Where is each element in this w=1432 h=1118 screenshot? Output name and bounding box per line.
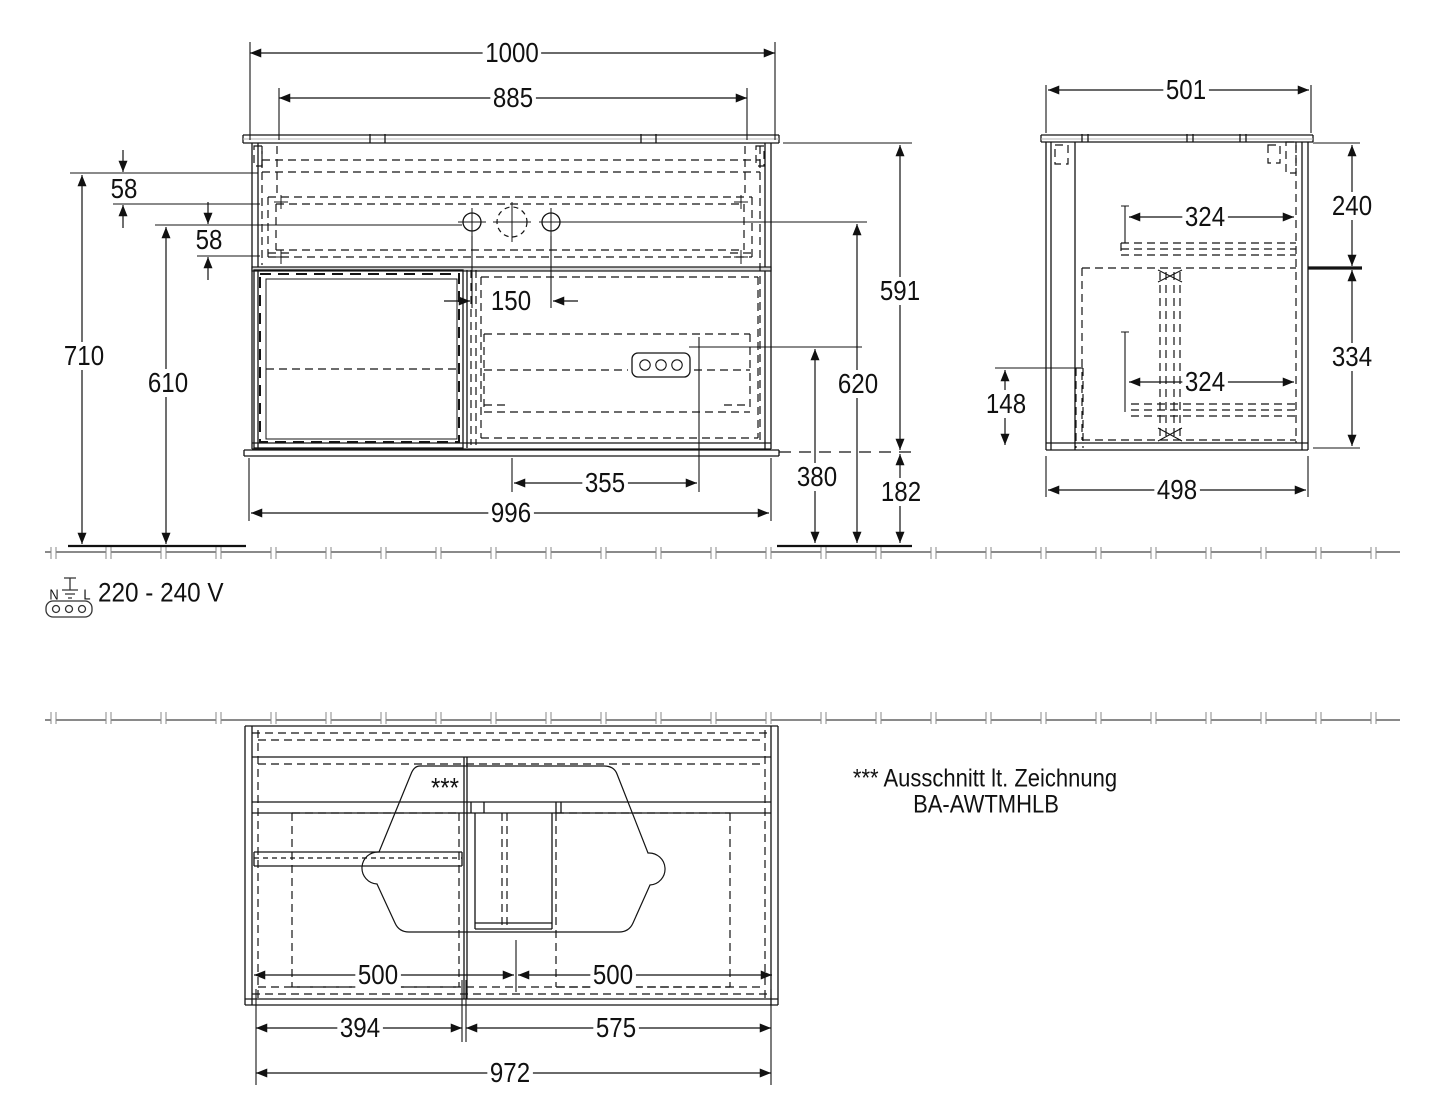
dim-bottom-left-section: 500	[355, 961, 400, 989]
dim-front-tap-height: 620	[835, 370, 880, 398]
dim-front-basin-width: 885	[490, 84, 535, 112]
dim-bottom-left-module: 394	[337, 1014, 382, 1042]
dim-side-upper-drawer-depth: 324	[1182, 203, 1227, 231]
dim-front-drawer-top-gap: 58	[193, 226, 225, 254]
dim-front-drawer-ref-height: 610	[145, 369, 190, 397]
dim-side-top-depth: 501	[1163, 76, 1208, 104]
bottom-view-hidden-lines	[252, 730, 771, 1000]
dim-front-basin-rim-drop: 58	[108, 175, 140, 203]
terminal-neutral-label: N	[48, 588, 59, 603]
dim-front-socket-offset: 355	[582, 469, 627, 497]
dim-bottom-carcass-width: 972	[487, 1059, 532, 1087]
dim-bottom-right-section: 500	[590, 961, 635, 989]
cutout-note-line2: BA-AWTMHLB	[913, 793, 1059, 818]
dim-front-socket-height: 380	[794, 463, 839, 491]
cutout-note-line1: *** Ausschnitt lt. Zeichnung	[853, 767, 1117, 792]
dim-front-carcass-width: 996	[488, 499, 533, 527]
bottom-view	[245, 726, 778, 1085]
technical-drawing-canvas: 1000 885 58 58 150 710 610 591 620 380 1…	[0, 0, 1432, 1118]
dim-side-cutout-height: 148	[983, 390, 1028, 418]
dim-side-lower-drawer-depth: 324	[1182, 368, 1227, 396]
dim-bottom-right-module: 575	[593, 1014, 638, 1042]
side-view-hidden-lines	[1055, 142, 1296, 448]
dim-front-top-width: 1000	[483, 39, 542, 67]
terminal-line-label: L	[83, 588, 92, 603]
dim-front-wall-height: 710	[61, 342, 106, 370]
dim-side-lower-height: 334	[1329, 343, 1374, 371]
dim-front-tap-spacing: 150	[488, 287, 533, 315]
dim-side-carcass-depth: 498	[1154, 476, 1199, 504]
dim-side-upper-height: 240	[1329, 192, 1374, 220]
front-view	[70, 42, 912, 521]
floor-hatching	[45, 546, 1400, 724]
side-view	[995, 85, 1362, 497]
front-view-hidden-lines	[254, 146, 912, 452]
voltage-label: 220 - 240 V	[98, 580, 224, 607]
cutout-marker: ***	[428, 774, 461, 802]
dim-front-floor-clearance: 182	[878, 478, 923, 506]
drawing-linework	[0, 0, 1432, 1118]
dim-front-carcass-height: 591	[877, 277, 922, 305]
